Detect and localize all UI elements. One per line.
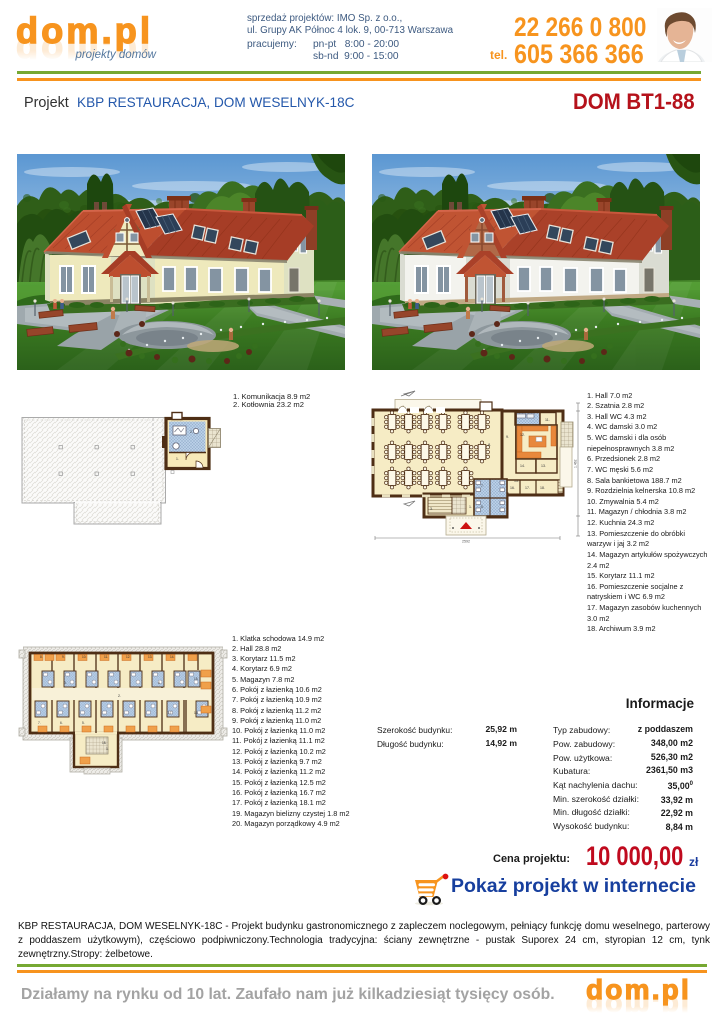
svg-text:16.: 16. xyxy=(194,711,199,715)
svg-text:9.: 9. xyxy=(62,655,65,659)
svg-text:2.: 2. xyxy=(190,430,193,434)
svg-text:17.: 17. xyxy=(525,486,530,490)
svg-text:8.: 8. xyxy=(40,655,43,659)
svg-text:16.: 16. xyxy=(510,486,515,490)
svg-text:3.: 3. xyxy=(430,507,433,511)
svg-text:13.: 13. xyxy=(148,655,153,659)
svg-text:5.: 5. xyxy=(82,721,85,725)
svg-text:11.: 11. xyxy=(545,418,550,422)
svg-text:9.: 9. xyxy=(506,435,509,439)
svg-text:18.: 18. xyxy=(540,486,545,490)
svg-text:2592: 2592 xyxy=(462,540,470,544)
svg-text:11.: 11. xyxy=(104,655,108,659)
svg-text:2.: 2. xyxy=(118,694,121,698)
svg-text:3.: 3. xyxy=(64,681,67,685)
svg-text:1.: 1. xyxy=(469,505,472,509)
svg-text:1.: 1. xyxy=(106,747,109,751)
svg-text:12.: 12. xyxy=(520,433,525,437)
svg-text:5.: 5. xyxy=(481,505,484,509)
svg-text:12.: 12. xyxy=(126,655,131,659)
svg-text:14.: 14. xyxy=(520,464,525,468)
svg-text:7.: 7. xyxy=(481,484,484,488)
svg-text:8.: 8. xyxy=(488,442,491,447)
svg-text:18.: 18. xyxy=(102,741,107,745)
svg-text:6.: 6. xyxy=(60,721,63,725)
svg-text:17.: 17. xyxy=(168,711,173,715)
svg-text:7.: 7. xyxy=(38,721,41,725)
svg-text:15.: 15. xyxy=(194,677,199,681)
svg-text:4.: 4. xyxy=(158,681,161,685)
svg-text:13.: 13. xyxy=(541,464,546,468)
svg-text:1.: 1. xyxy=(176,457,179,461)
svg-text:10.: 10. xyxy=(82,655,87,659)
svg-text:14.: 14. xyxy=(170,655,175,659)
svg-text:1.462: 1.462 xyxy=(574,459,578,468)
